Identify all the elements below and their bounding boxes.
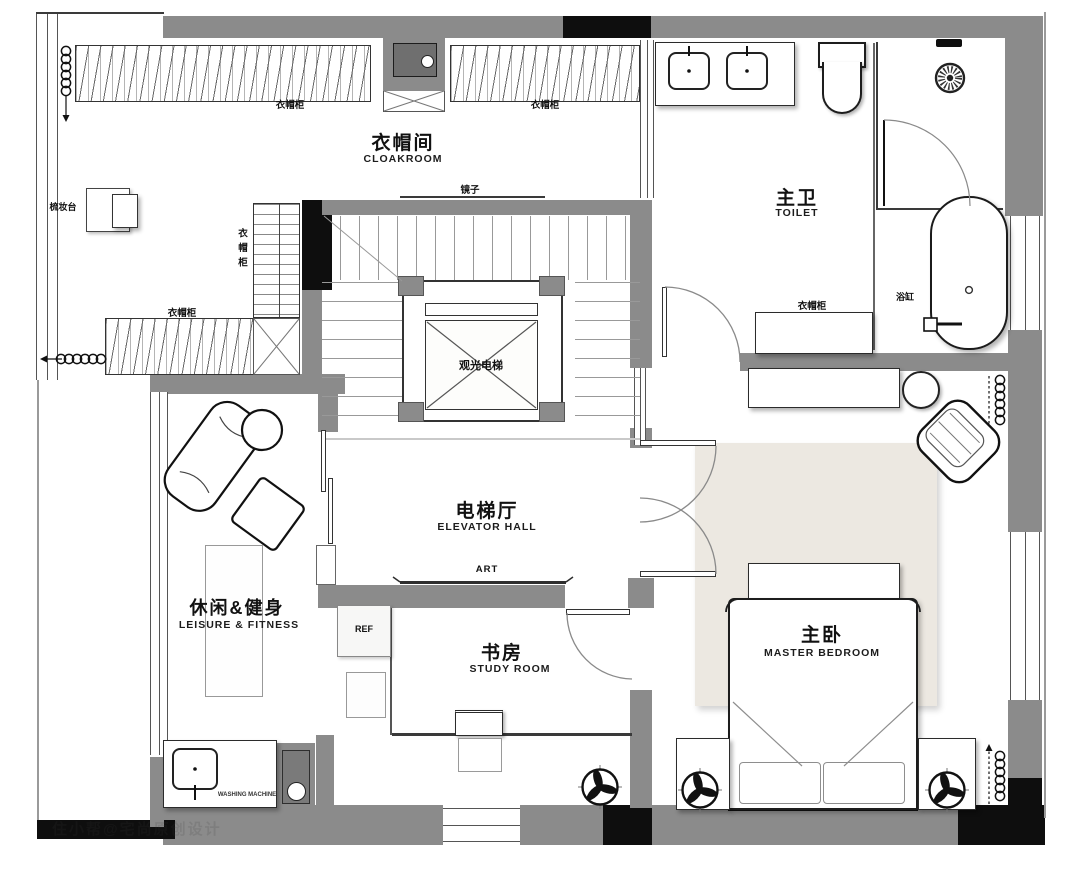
stair-treads-left — [322, 282, 402, 430]
laundry-sink — [172, 748, 218, 790]
study-desk-counter — [392, 733, 632, 736]
toilet-bowl — [822, 62, 862, 114]
study-label-zh: 书房 — [481, 638, 523, 665]
opening-cloakroom-toilet — [640, 40, 654, 198]
mirror-strip — [400, 196, 545, 198]
toilet-partition — [873, 43, 875, 350]
art-wall — [400, 581, 566, 584]
elevator-hall-label-en: ELEVATOR HALL — [437, 521, 536, 533]
window-bedroom-east — [1010, 532, 1040, 700]
window-study-south — [443, 808, 520, 842]
french-door-leaf-top — [640, 440, 716, 446]
cabinet-xbox-corner — [253, 318, 300, 375]
wall-stair-north-mirror — [322, 200, 640, 215]
niche-sink-drain — [421, 55, 434, 68]
outline-right — [1044, 12, 1046, 818]
massage-recliner — [157, 394, 306, 552]
side-table — [902, 371, 940, 409]
fan-study — [578, 765, 622, 809]
elevator-hall-label-zh: 电梯厅 — [455, 496, 518, 523]
bedroom-label-en: MASTER BEDROOM — [764, 647, 880, 659]
dressing-table-label: 梳妆台 — [49, 200, 76, 213]
leisure-label-en: LEISURE & FITNESS — [179, 619, 299, 631]
toilet-door-arc — [665, 287, 740, 362]
wardrobe-top-right — [450, 45, 640, 102]
wall-leisure-east-low — [316, 735, 334, 807]
wardrobe-label-top-right: 衣帽柜 — [531, 97, 560, 111]
pillow-left — [739, 762, 821, 804]
wardrobe-label-top-left: 衣帽柜 — [276, 97, 305, 111]
art-label: ART — [476, 564, 499, 575]
toilet-label-zh: 主卫 — [776, 183, 818, 210]
bathtub — [930, 196, 1008, 350]
bathtub-label: 浴缸 — [896, 290, 914, 303]
shower-wall-left — [876, 42, 878, 210]
wall-laundry-left — [150, 757, 164, 827]
toilet-label-en: TOILET — [775, 207, 818, 219]
nightstand-left — [676, 738, 730, 810]
french-door-leaf-bottom — [640, 571, 716, 577]
curtain-bedroom-upper — [986, 375, 1005, 440]
nightstand-right — [918, 738, 976, 810]
mirror-label: 镜子 — [460, 182, 479, 196]
outline-top-left — [36, 12, 164, 14]
study-door-arc — [567, 613, 632, 679]
desk-unit — [455, 710, 503, 736]
cloakroom-label-zh: 衣帽间 — [371, 128, 434, 155]
floor-drain — [287, 782, 306, 801]
toilet-door-leaf — [662, 287, 667, 357]
wall-bottom-study-right — [520, 805, 603, 845]
bedroom-label-zh: 主卧 — [801, 620, 843, 647]
wardrobe-bottom — [105, 318, 255, 375]
bedroom-dresser — [748, 368, 900, 408]
shower-valve — [936, 39, 962, 47]
stair-treads-right — [575, 282, 640, 430]
shower-door-arc — [884, 120, 970, 206]
washing-machine-label: WASHING MACHINE — [218, 792, 276, 798]
vanity-sink-left — [668, 52, 710, 90]
desk-chair — [458, 738, 502, 772]
shaft-post-sw — [398, 402, 424, 422]
cabinet-xbox-top — [383, 90, 445, 112]
wardrobe-top-left — [75, 45, 371, 102]
terrace-edge — [37, 380, 39, 820]
window-bath-east — [1010, 216, 1040, 330]
wall-bedroom-west-upper-block — [628, 578, 654, 608]
wardrobe-side — [253, 203, 300, 318]
wall-right-upper — [1005, 16, 1043, 216]
stair-treads-top — [340, 216, 640, 280]
wall-top-left — [163, 16, 563, 38]
study-door-leaf — [566, 609, 630, 615]
elevator-door — [425, 303, 538, 316]
wall-right-lower — [1008, 700, 1042, 778]
wall-bedroom-west-lower — [630, 690, 652, 808]
toilet-wardrobe-cabinet — [755, 312, 873, 354]
floor-plan: 衣帽间 CLOAKROOM 主卫 TOILET 电梯厅 ELEVATOR HAL… — [0, 0, 1080, 869]
sill-hall-west — [316, 545, 336, 585]
window-cloakroom-west — [36, 12, 58, 380]
shower-head-icon — [936, 64, 964, 92]
wardrobe-label-toilet: 衣帽柜 — [798, 298, 827, 312]
wall-bottom-right-black — [958, 805, 1045, 845]
wardrobe-label-bottom: 衣帽柜 — [168, 305, 197, 319]
wall-right-middle — [1008, 330, 1042, 532]
shaft-post-nw — [398, 276, 424, 296]
wall-stair-west — [302, 290, 322, 376]
wall-cloakroom-south — [150, 374, 345, 394]
wall-top-black — [563, 16, 651, 38]
sliding-door-panel-1 — [321, 430, 326, 492]
fridge-label: REF — [355, 624, 373, 634]
pillow-right — [823, 762, 905, 804]
vanity-sink-right — [726, 52, 768, 90]
curtain-bedroom-lower — [986, 744, 1005, 804]
study-label-en: STUDY ROOM — [470, 663, 551, 675]
sink-taps — [195, 46, 747, 800]
wall-bottom-black-mid — [603, 805, 652, 845]
wardrobe-label-side: 衣帽柜 — [234, 228, 248, 272]
window-leisure-west — [150, 392, 168, 755]
hall-landing-line — [322, 438, 640, 440]
cloakroom-label-en: CLOAKROOM — [364, 153, 443, 165]
shaft-post-se — [539, 402, 565, 422]
wall-top-right — [651, 16, 1023, 38]
watermark: 住小帮@宅尚原创设计 — [52, 818, 222, 839]
sliding-door-panel-2 — [328, 478, 333, 544]
dressing-stool — [112, 194, 138, 228]
elevator-label: 观光电梯 — [459, 357, 503, 373]
wall-bottom-bedroom — [652, 805, 958, 845]
leisure-label-zh: 休闲&健身 — [190, 594, 285, 620]
nook-cabinet — [346, 672, 386, 718]
curtain-cloakroom-top — [61, 46, 70, 122]
shaft-post-ne — [539, 276, 565, 296]
